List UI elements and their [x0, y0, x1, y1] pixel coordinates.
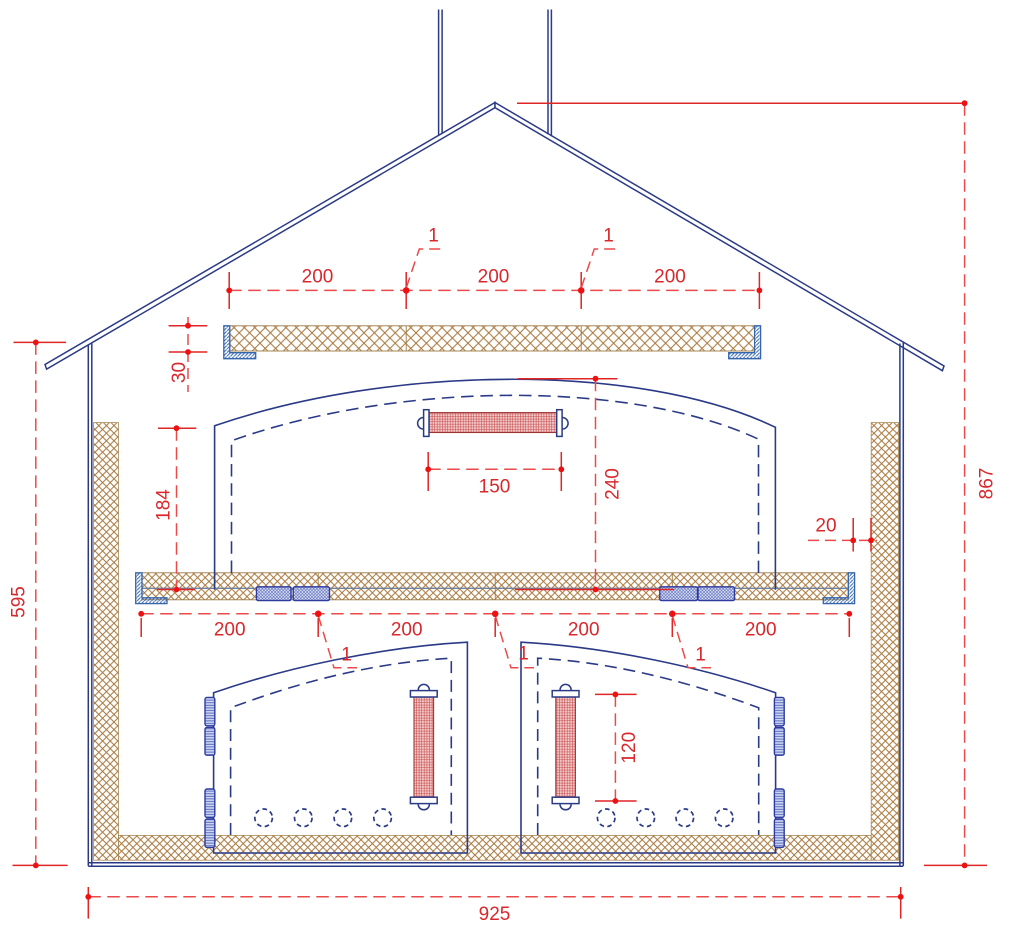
svg-text:867: 867 [976, 468, 997, 500]
svg-text:1: 1 [518, 644, 529, 665]
svg-text:120: 120 [619, 732, 640, 764]
svg-text:240: 240 [602, 468, 623, 500]
svg-text:200: 200 [568, 619, 600, 640]
svg-text:20: 20 [815, 516, 836, 537]
svg-text:200: 200 [391, 619, 423, 640]
svg-text:200: 200 [214, 619, 246, 640]
svg-text:184: 184 [153, 489, 174, 521]
svg-text:150: 150 [479, 477, 511, 498]
svg-text:200: 200 [478, 266, 510, 287]
svg-text:1: 1 [341, 645, 352, 666]
svg-text:1: 1 [695, 645, 706, 666]
svg-text:1: 1 [428, 226, 439, 247]
svg-text:595: 595 [8, 586, 29, 618]
svg-text:200: 200 [745, 619, 777, 640]
svg-text:200: 200 [654, 266, 686, 287]
svg-text:925: 925 [479, 904, 511, 925]
svg-text:30: 30 [169, 362, 190, 383]
svg-text:200: 200 [302, 266, 334, 287]
svg-text:1: 1 [603, 226, 614, 247]
